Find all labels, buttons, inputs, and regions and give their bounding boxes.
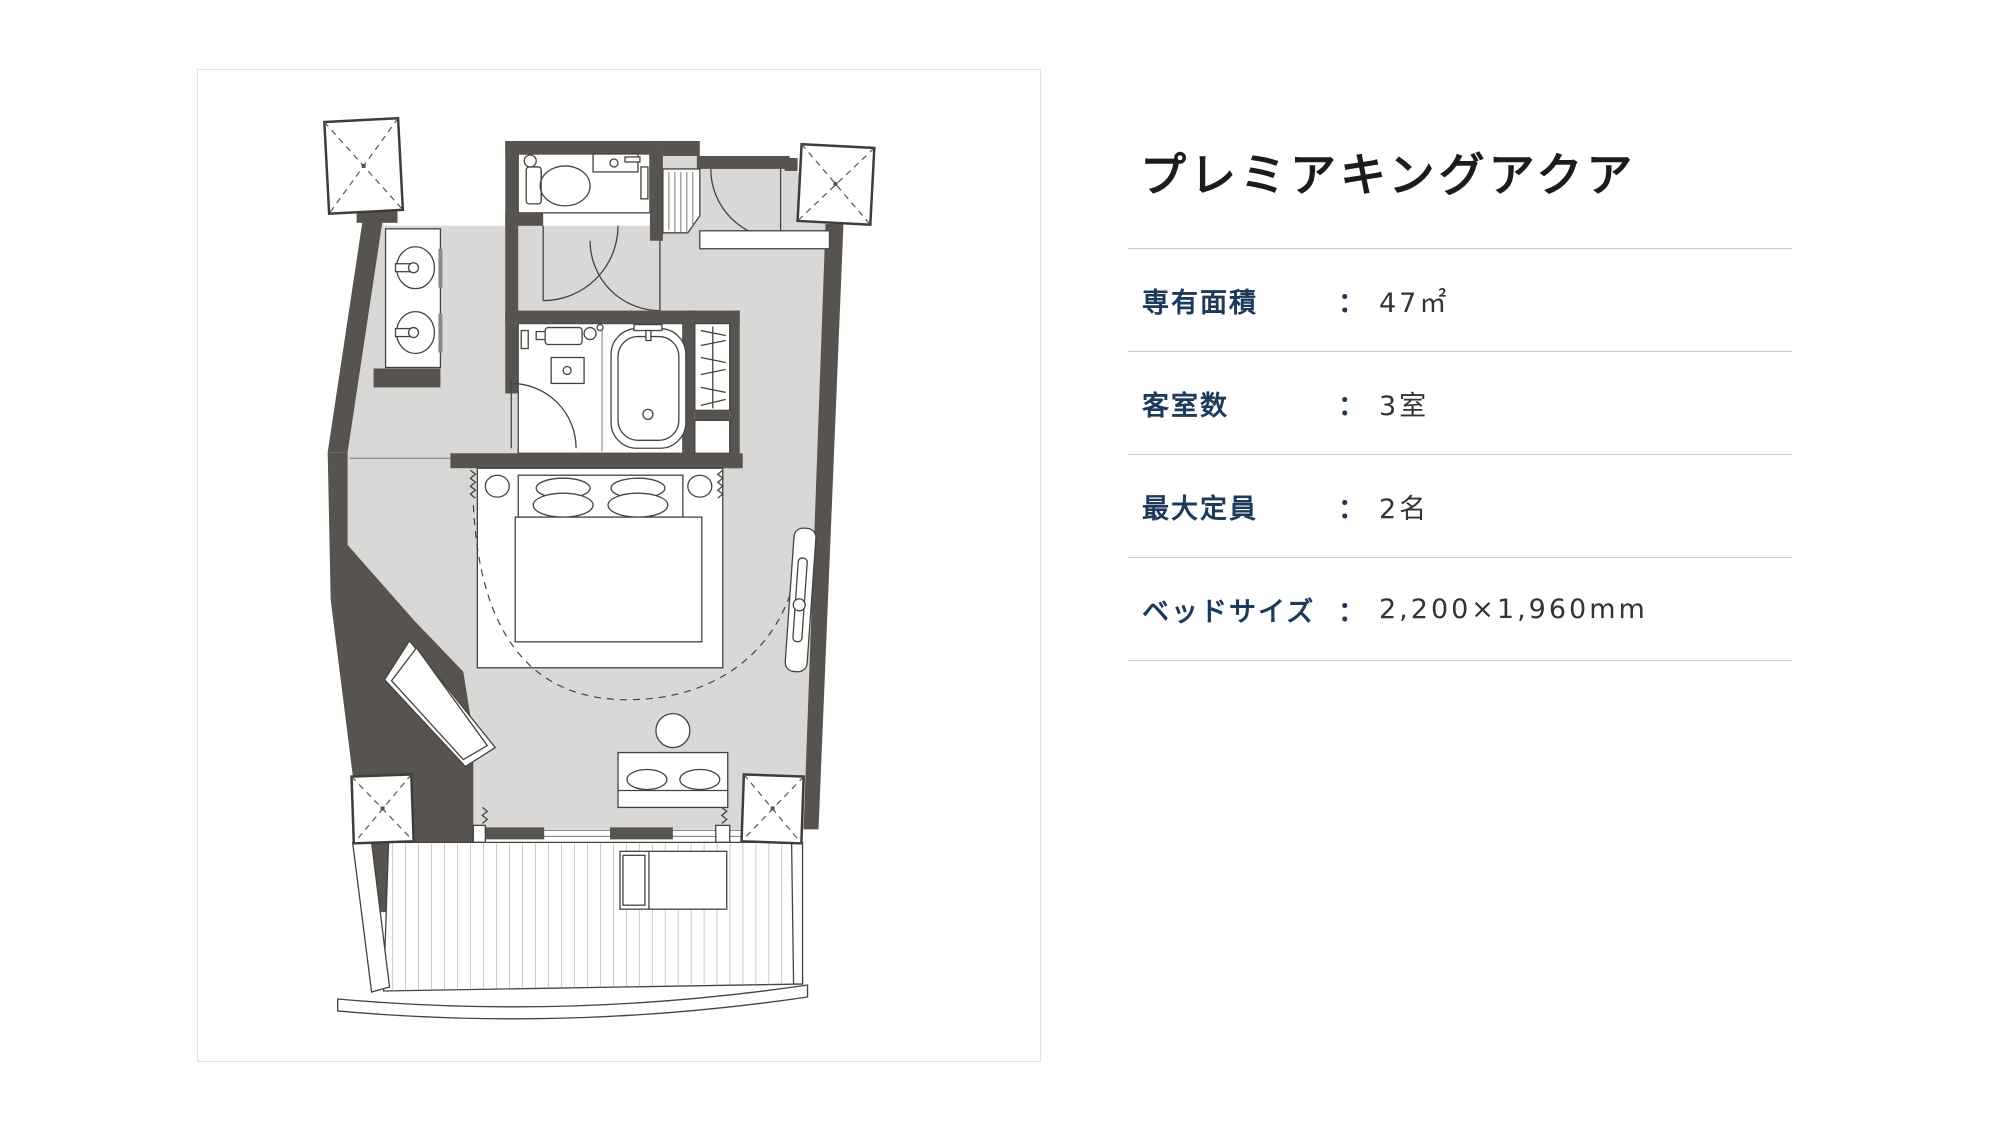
column-top-left [324,118,403,214]
toilet-basin-icon [593,154,640,172]
spec-value: 2名 [1379,487,1429,526]
entry-console [700,231,830,249]
page: プレミアキングアクア 専有面積 ： 47㎡ 客室数 ： 3室 最大定員 ： 2名… [0,0,2000,1125]
king-bed [477,468,722,668]
floor-plan-svg [198,70,1040,1061]
spec-row-rooms: 客室数 ： 3室 [1128,352,1792,455]
floor-plan-card [197,69,1041,1062]
vanity-bracket [438,249,442,288]
sink-icon [396,247,435,289]
spec-row-bedsize: ベッドサイズ ： 2,200×1,960mm [1128,558,1792,661]
toilet-paper-holder [641,167,648,199]
bedside-lamp-icon-2 [688,475,712,497]
spec-colon: ： [1338,384,1365,423]
bathroom [505,311,695,469]
bedside-lamp-icon [485,475,509,497]
column-bottom-right [742,774,804,843]
spec-table: 専有面積 ： 47㎡ 客室数 ： 3室 最大定員 ： 2名 ベッドサイズ ： 2… [1128,248,1792,661]
desk-sofa [618,753,728,808]
bathtub-icon [611,325,686,449]
closet-lower-compartment [695,420,730,453]
column-bottom-left [352,774,414,843]
spec-value: 47㎡ [1379,281,1449,320]
spec-row-capacity: 最大定員 ： 2名 [1128,455,1792,558]
spec-value: 2,200×1,960mm [1379,594,1648,625]
balcony-right-edge [792,842,803,984]
spec-colon: ： [1338,590,1365,629]
corridor-left-wall [505,226,518,324]
lounger-icon [620,851,727,909]
vanity-bracket-2 [438,314,442,353]
spec-value: 3室 [1379,384,1429,423]
spec-colon: ： [1338,487,1365,526]
sink-icon-2 [396,312,435,354]
spec-label: 専有面積 [1142,281,1338,320]
room-title: プレミアキングアクア [1140,139,1636,205]
spec-colon: ： [1338,281,1365,320]
headboard-wall [450,453,742,468]
balcony-deck [338,842,808,1018]
luggage-rack [663,169,700,233]
vanity-nook-wall [374,368,441,387]
column-top-right [798,144,875,225]
spec-label: 最大定員 [1142,487,1338,526]
duvet [515,517,702,642]
stool-icon [656,714,690,748]
spec-label: ベッドサイズ [1142,590,1338,629]
spec-label: 客室数 [1142,384,1338,423]
spec-row-area: 専有面積 ： 47㎡ [1128,249,1792,352]
